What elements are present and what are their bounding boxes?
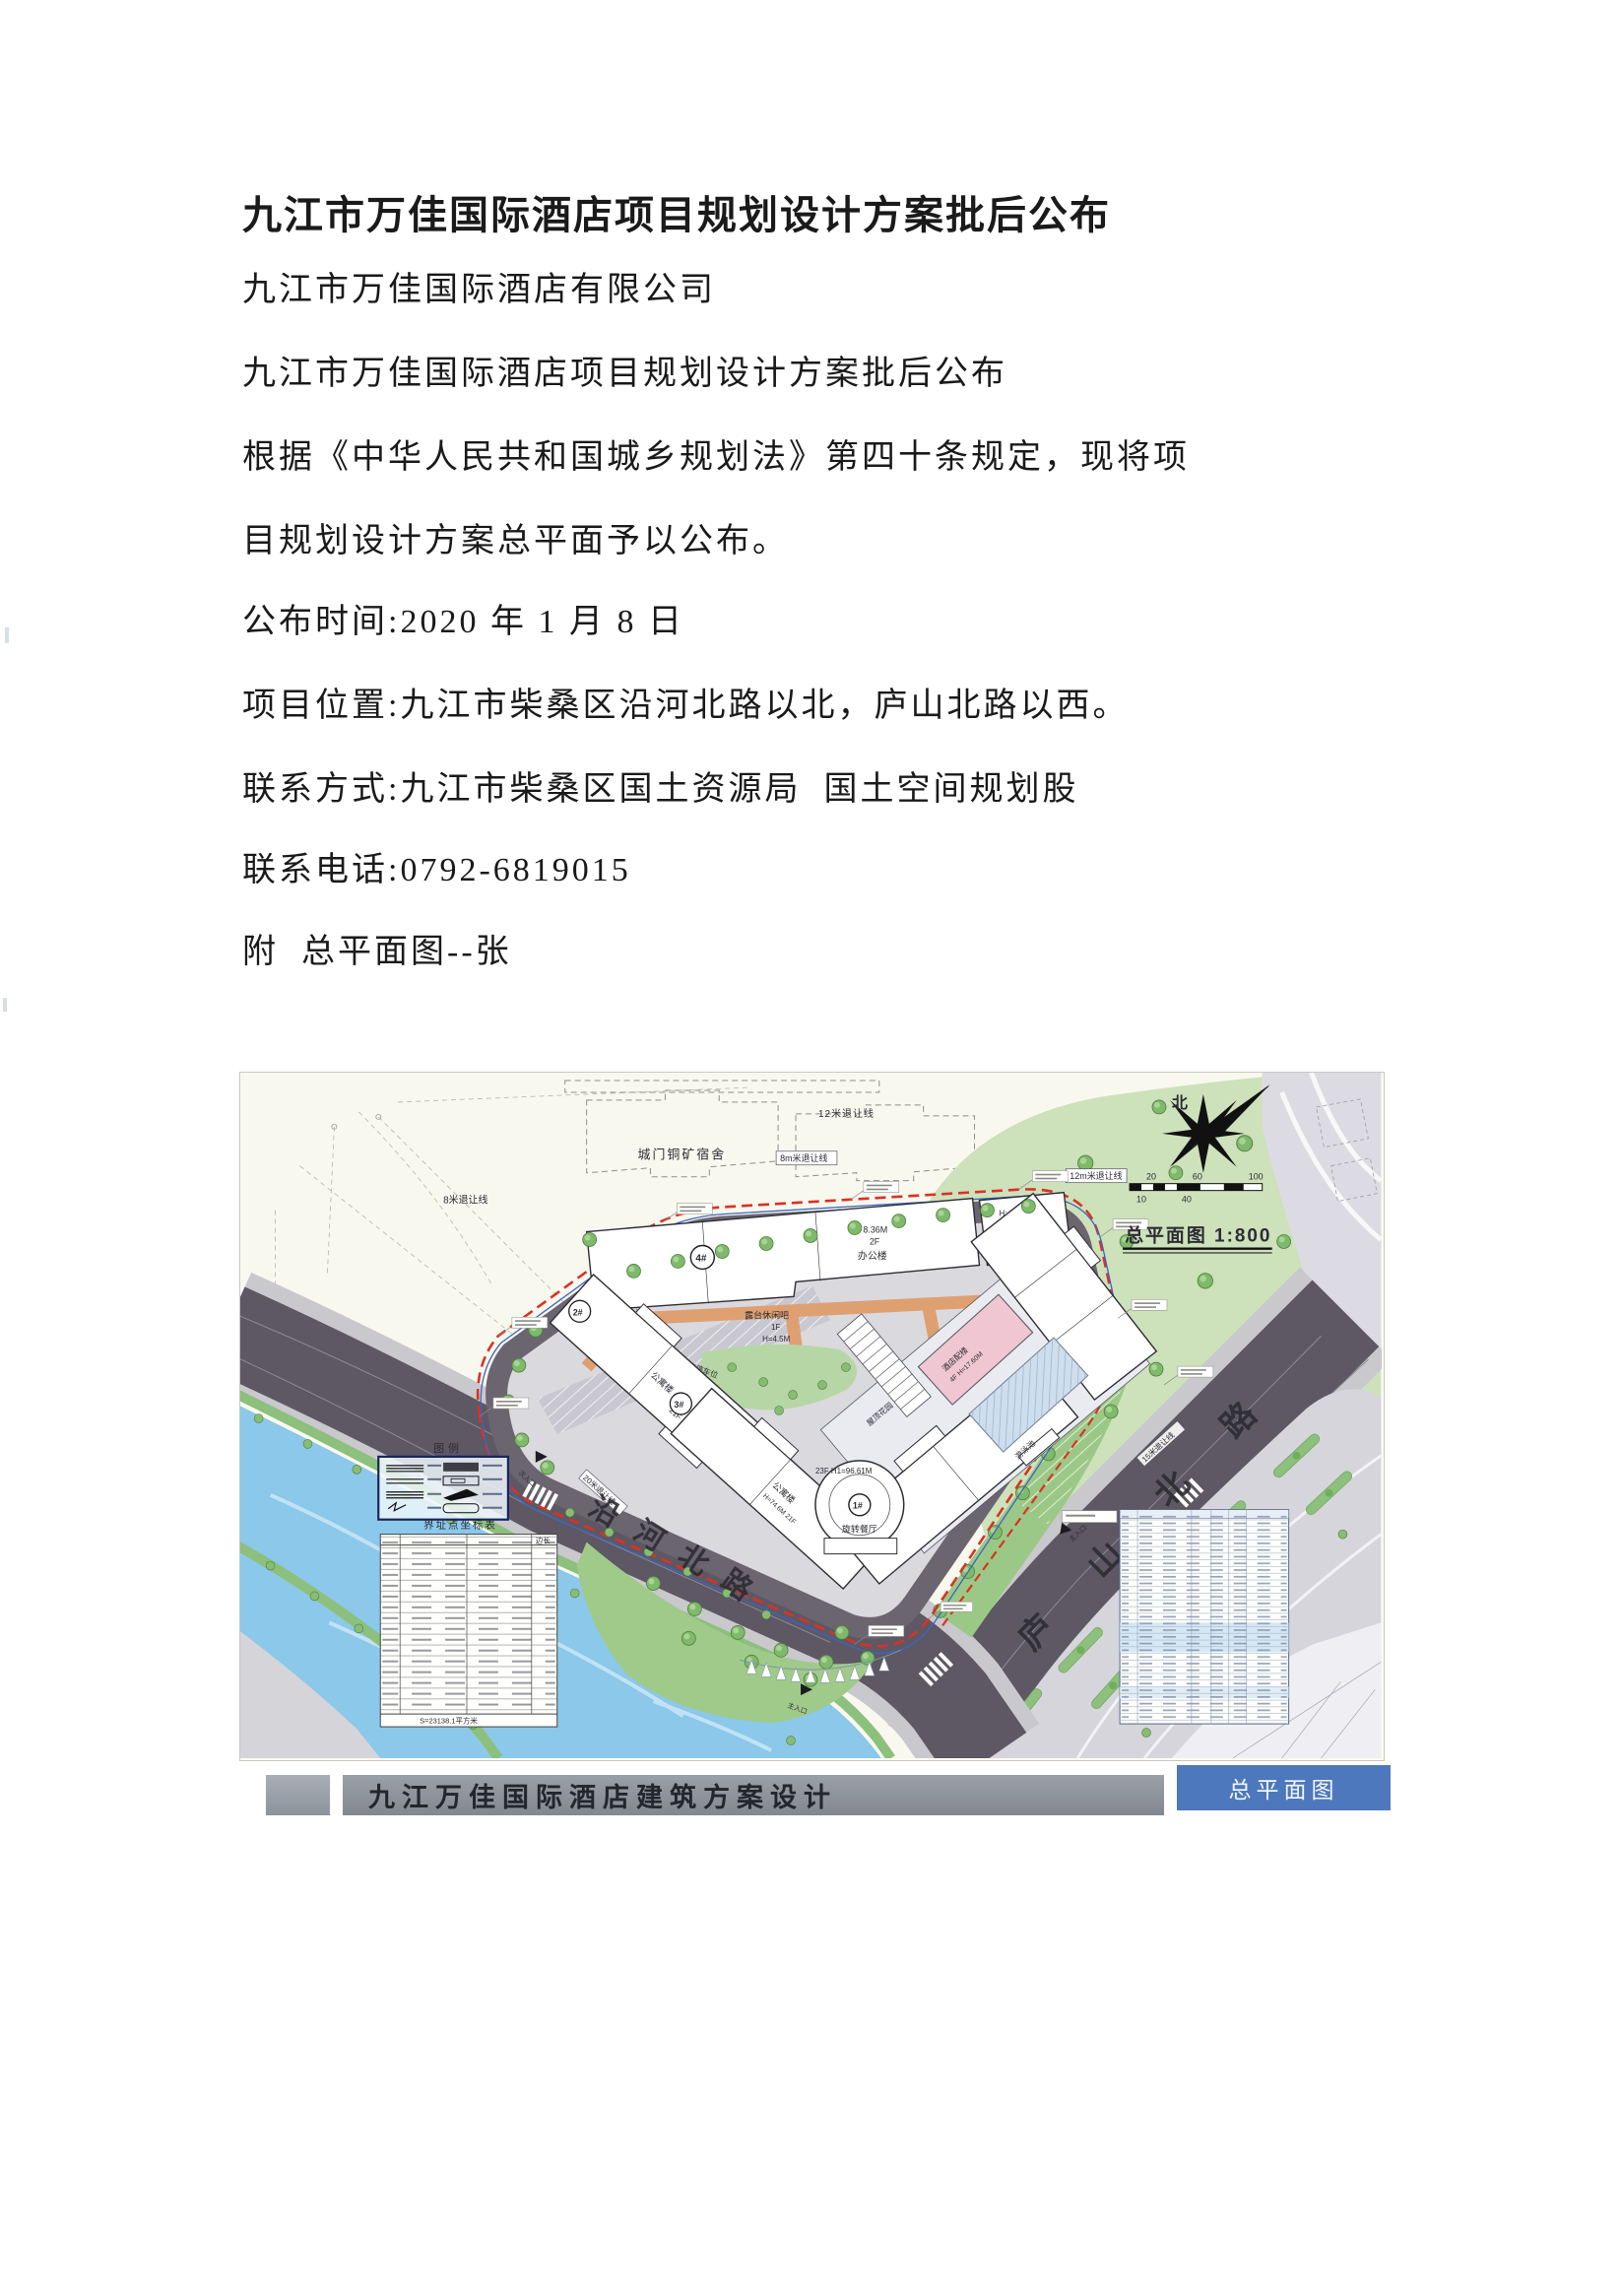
coordinate-table-title: 界址点坐标表 [423, 1519, 497, 1532]
legend-title: 图例 [433, 1441, 463, 1455]
scale-tick-100: 100 [1249, 1172, 1264, 1182]
building-2-tag: 2# [573, 1307, 583, 1317]
plan-title: 总平面图 1:800 [1125, 1224, 1271, 1247]
setback-8-label: 8米退让线 [443, 1194, 487, 1207]
svg-text:8m米退让线: 8m米退让线 [780, 1152, 827, 1163]
page-title: 九江市万佳国际酒店项目规划设计方案批后公布 [242, 183, 1111, 240]
phone-line: 联系电话:0792-6819015 [242, 842, 631, 890]
setback-8m-label: 8m米退让线 [776, 1151, 837, 1165]
scale-tick-20: 20 [1146, 1172, 1156, 1182]
dormitory-label: 城门铜矿宿舍 [638, 1148, 727, 1162]
site-plan-figure: 城门铜矿宿舍 [239, 1072, 1385, 1761]
building-1-name: 旋转餐厅 [842, 1524, 877, 1535]
company-line: 九江市万佳国际酒店有限公司 [242, 262, 716, 310]
building-1-tower: 23F H1=96.61M 1# 旋转餐厅 [815, 1461, 904, 1554]
setback-12-label: 12米退让线 [818, 1107, 875, 1120]
paragraph-line-2: 目规划设计方案总平面予以公布。 [242, 513, 789, 561]
attachment-line: 附 总平面图--张 [242, 924, 512, 972]
coordinate-table: 界址点坐标表 边长 S=23138.1平方米 [380, 1519, 556, 1727]
north-label: 北 [1172, 1094, 1188, 1112]
scale-tick-60: 60 [1193, 1172, 1202, 1182]
setback-12m-label: 12m米退让线 [1066, 1169, 1127, 1183]
terrace-bar-label: 露台休闲吧 [745, 1309, 789, 1320]
coordinate-col-side: 边长 [536, 1536, 551, 1545]
footer-logo-block [266, 1775, 330, 1815]
coordinate-footer: S=23138.1平方米 [420, 1716, 478, 1726]
svg-text:12m米退让线: 12m米退让线 [1070, 1170, 1122, 1181]
footer-sheet-tab-label: 总平面图 [1229, 1771, 1339, 1804]
scan-artifact [3, 998, 7, 1012]
contact-line: 联系方式:九江市柴桑区国土资源局 国土空间规划股 [242, 761, 1078, 810]
building-4-floors: 2F [870, 1236, 880, 1246]
publish-date-line: 公布时间:2020 年 1 月 8 日 [242, 594, 684, 642]
paragraph-line-1: 根据《中华人民共和国城乡规划法》第四十条规定，现将项 [242, 429, 1190, 478]
scan-artifact [5, 627, 9, 643]
building-4-name: 办公楼 [858, 1249, 887, 1262]
building-3-tag: 3# [674, 1400, 683, 1410]
scale-tick-10: 10 [1136, 1195, 1146, 1205]
footer-project-title: 九江万佳国际酒店建筑方案设计 [368, 1776, 837, 1814]
subtitle-line: 九江市万佳国际酒店项目规划设计方案批后公布 [242, 346, 1007, 394]
building-1-floors: 23F H1=96.61M [815, 1467, 872, 1476]
building-4-tag: 4# [695, 1253, 707, 1264]
scanned-announcement-page: 九江市万佳国际酒店项目规划设计方案批后公布 九江市万佳国际酒店有限公司 九江市万… [0, 0, 1621, 2296]
plan-title-block: 总平面图 1:800 [1123, 1224, 1272, 1254]
footer-sheet-tab: 总平面图 [1177, 1765, 1391, 1810]
footer-project-bar: 九江万佳国际酒店建筑方案设计 [343, 1775, 1164, 1815]
location-line: 项目位置:九江市柴桑区沿河北路以北，庐山北路以西。 [242, 678, 1129, 726]
scale-tick-40: 40 [1182, 1195, 1192, 1205]
terrace-bar-height: H=4.5M [762, 1335, 790, 1344]
building-1-tag: 1# [853, 1501, 863, 1511]
site-plan-svg: 城门铜矿宿舍 [240, 1073, 1382, 1758]
terrace-bar-floors: 1F [771, 1323, 780, 1332]
